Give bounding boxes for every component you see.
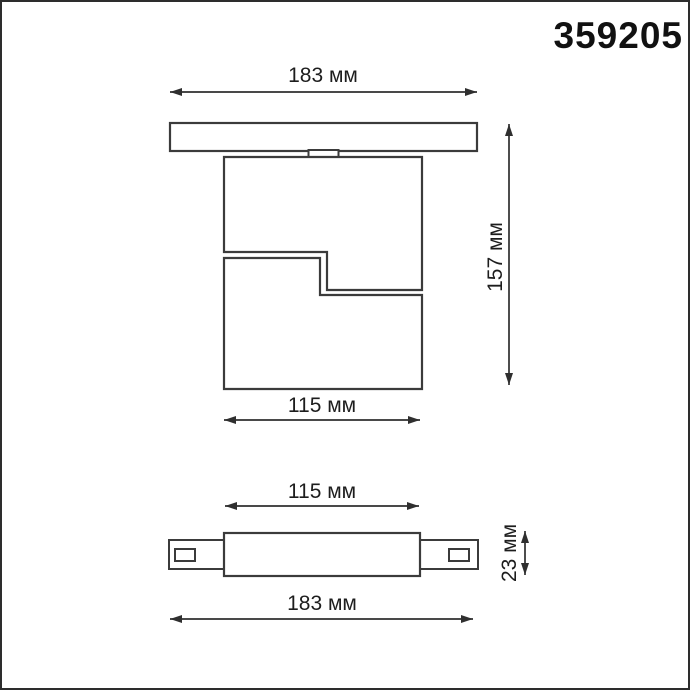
track-base-rect	[170, 123, 477, 151]
front-overall-height-dimension: 157 мм	[484, 124, 509, 385]
technical-drawing: 359205 183 мм 157 мм 115 мм	[2, 2, 690, 692]
front-overall-width-dimension: 183 мм	[170, 64, 477, 92]
bottom-body-width-dimension: 115 мм	[225, 480, 419, 506]
front-overall-width-label: 183 мм	[288, 64, 358, 87]
right-connector-slot	[449, 549, 469, 561]
bottom-view: 115 мм 23 мм 183 мм	[169, 480, 525, 619]
drawing-page: 359205 183 мм 157 мм 115 мм	[0, 0, 690, 690]
bottom-body-rect	[224, 533, 420, 576]
left-connector-slot	[175, 549, 195, 561]
front-body-width-dimension: 115 мм	[224, 394, 420, 420]
bottom-profile-height-label: 23 мм	[498, 524, 521, 582]
front-body-width-label: 115 мм	[288, 394, 356, 417]
bottom-profile-height-dimension: 23 мм	[498, 524, 525, 582]
bottom-body-width-label: 115 мм	[288, 480, 356, 503]
front-overall-height-label: 157 мм	[484, 222, 507, 292]
bottom-overall-width-label: 183 мм	[287, 592, 357, 615]
product-code: 359205	[554, 15, 683, 56]
bottom-overall-width-dimension: 183 мм	[170, 592, 473, 619]
front-view: 183 мм 157 мм 115 мм	[170, 64, 509, 420]
